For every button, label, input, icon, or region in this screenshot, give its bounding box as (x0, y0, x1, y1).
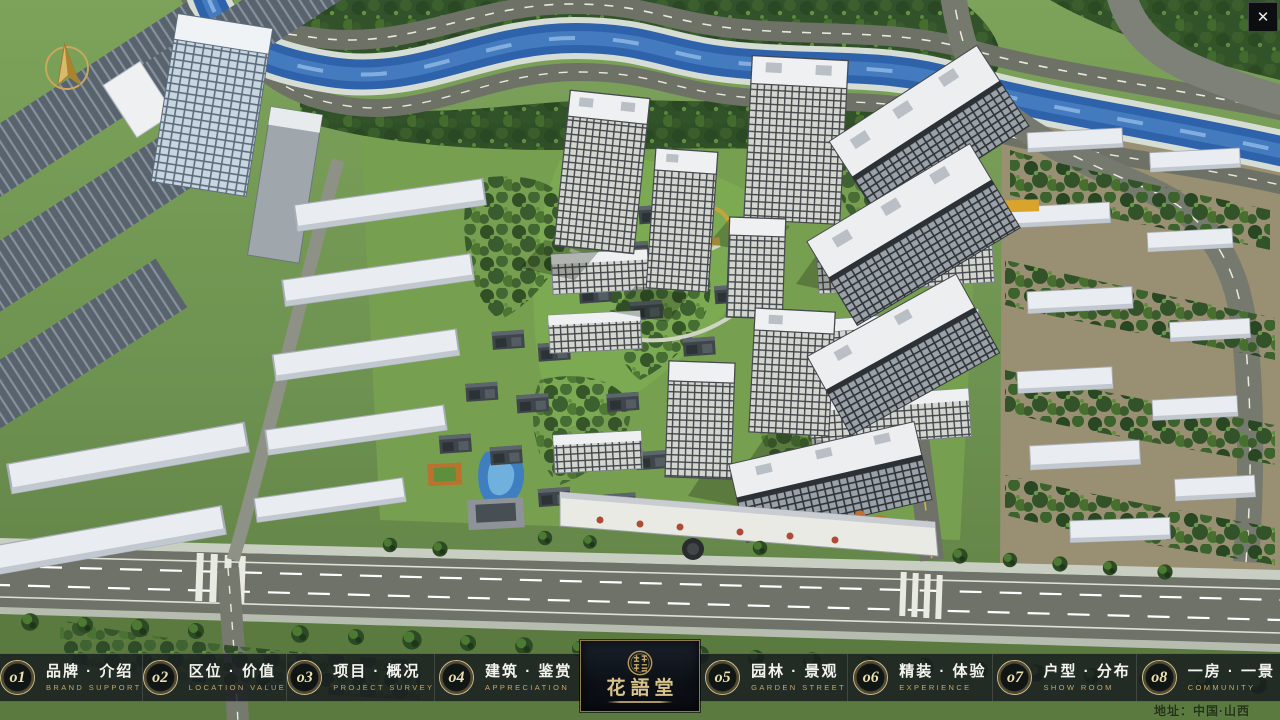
nav-subtitle: SHOW ROOM (1043, 684, 1113, 692)
nav-subtitle: COMMUNITY (1188, 684, 1256, 692)
project-address: 地址：中国·山西 (1154, 704, 1250, 718)
nav-item-interior[interactable]: o6 精装 · 体验EXPERIENCE (847, 654, 991, 701)
logo-divider (607, 701, 673, 703)
nav-group-right: o5 园林 · 景观GARDEN STREET o6 精装 · 体验EXPERI… (704, 654, 1280, 701)
nav-subtitle: EXPERIENCE (899, 684, 971, 692)
nav-label: 精装 · 体验 (899, 664, 986, 680)
nav-number-badge: o5 (705, 660, 740, 695)
nav-number: o2 (152, 670, 168, 686)
nav-item-project[interactable]: o3 项目 · 概况PROJECT SURVEY (286, 654, 434, 701)
masterplan-app-window: ✕ o1 品牌 · 介绍BRAND SUPPORT o2 区位 · 价值LOCA… (0, 0, 1280, 720)
nav-subtitle: PROJECT SURVEY (333, 684, 434, 692)
project-logo-name: 花語堂 (601, 679, 678, 698)
nav-number: o8 (1151, 670, 1167, 686)
nav-label: 园林 · 景观 (751, 664, 838, 680)
nav-number: o3 (297, 670, 313, 686)
project-logo-panel[interactable]: 花語堂 (580, 640, 700, 712)
nav-label: 户型 · 分布 (1043, 664, 1130, 680)
nav-subtitle: LOCATION VALUE (189, 684, 287, 692)
nav-number-badge: o7 (997, 660, 1032, 695)
nav-number: o6 (863, 670, 879, 686)
nav-number: o1 (10, 670, 26, 686)
close-button[interactable]: ✕ (1248, 2, 1278, 32)
nav-item-architecture[interactable]: o4 建筑 · 鉴赏APPRECIATION (434, 654, 576, 701)
nav-label: 品牌 · 介绍 (46, 664, 133, 680)
nav-subtitle: GARDEN STREET (751, 684, 846, 692)
nav-item-location[interactable]: o2 区位 · 价值LOCATION VALUE (142, 654, 287, 701)
nav-label: 建筑 · 鉴赏 (485, 664, 572, 680)
nav-item-floorplan[interactable]: o7 户型 · 分布SHOW ROOM (992, 654, 1136, 701)
masterplan-render (0, 0, 1280, 720)
nav-number-badge: o6 (853, 660, 888, 695)
nav-item-view[interactable]: o8 一房 · 一景COMMUNITY (1136, 654, 1280, 701)
nav-group-left: o1 品牌 · 介绍BRAND SUPPORT o2 区位 · 价值LOCATI… (0, 654, 576, 701)
nav-number-badge: o4 (439, 660, 474, 695)
nav-number: o7 (1007, 670, 1023, 686)
nav-number-badge: o8 (1142, 660, 1177, 695)
nav-number-badge: o3 (287, 660, 322, 695)
nav-label: 区位 · 价值 (189, 664, 276, 680)
nav-number: o4 (449, 670, 465, 686)
nav-item-brand[interactable]: o1 品牌 · 介绍BRAND SUPPORT (0, 654, 142, 701)
nav-item-garden[interactable]: o5 园林 · 景观GARDEN STREET (704, 654, 847, 701)
seal-icon (627, 650, 653, 676)
nav-subtitle: APPRECIATION (485, 684, 569, 692)
nav-subtitle: BRAND SUPPORT (46, 684, 142, 692)
nav-number-badge: o2 (143, 660, 178, 695)
nav-label: 一房 · 一景 (1188, 664, 1275, 680)
nav-number-badge: o1 (0, 660, 35, 695)
nav-label: 项目 · 概况 (333, 664, 420, 680)
nav-number: o5 (715, 670, 731, 686)
